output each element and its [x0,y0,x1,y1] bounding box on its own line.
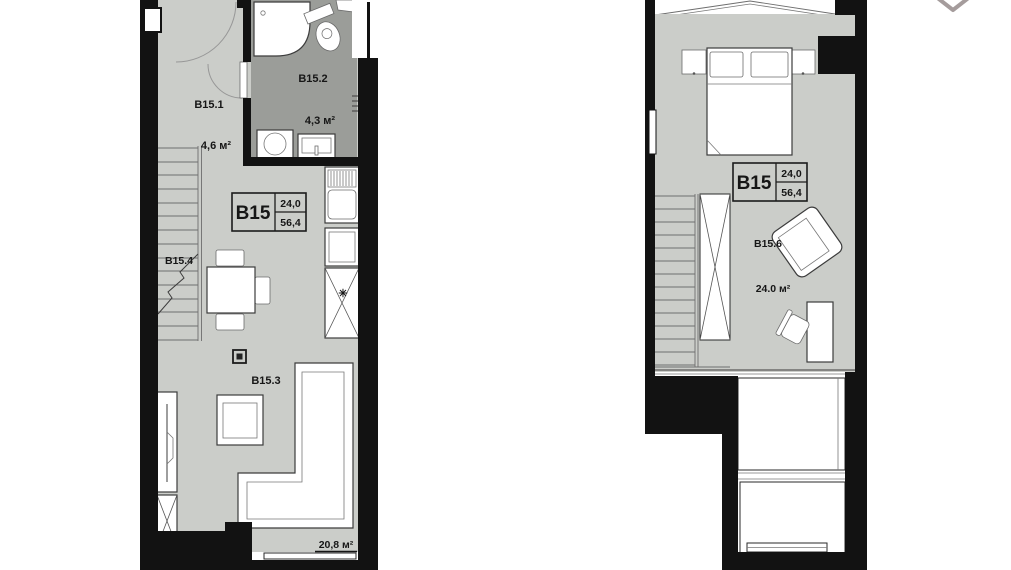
balcony-window [264,553,356,559]
pillow-icon [751,52,788,77]
room-label-hall: B15.1 [194,99,223,111]
nightstand-knob [693,72,696,75]
nightstand-knob [802,72,805,75]
burner-symbol: ✳ [338,288,347,300]
chair-icon [255,277,270,304]
desk-icon [807,302,833,362]
unit-number: B15 [737,173,772,194]
unit-area-total: 56,4 [781,187,802,199]
nightstand-icon [791,50,815,74]
room-area-bedroom: 24.0 м² [756,283,791,295]
floor-plan-lower-level: ✳ [140,0,378,570]
room-label-bathroom: B15.2 [298,73,327,85]
unit-info-card: B15 24,0 56,4 [232,193,306,231]
coffee-table-icon [217,395,263,445]
roof-panel [738,378,845,470]
faucet-icon [315,146,318,155]
kitchen-units: ✳ [325,167,359,338]
bathroom-door-leaf [240,62,247,98]
washing-machine-icon [257,130,293,158]
window-icon [649,110,656,154]
room-area-hall: 4,6 м² [201,140,231,152]
room-label-stairs: B15.4 [165,255,193,267]
shower-icon [254,2,310,56]
unit-area-level: 24,0 [781,168,802,180]
close-button[interactable] [925,0,985,22]
floor-plan-upper-level: B15 24,0 56,4 B15.6 24.0 м² [645,0,867,570]
entry-niche [144,8,161,32]
unit-area-total: 56,4 [280,217,301,229]
room-label-bedroom: B15.6 [754,238,782,250]
unit-number: B15 [236,203,271,224]
pillow-icon [710,52,743,77]
room-area-bathroom: 4,3 м² [305,115,335,127]
sink-basin-icon [328,190,356,219]
corner-window-area [352,0,378,58]
floor-plan-viewer: ✳ [0,0,1011,570]
room-area-living: 20,8 м² [319,539,354,551]
chair-icon [216,314,244,330]
close-icon [925,0,985,22]
kitchen-counter [325,228,359,266]
unit-area-level: 24,0 [280,198,301,210]
roof-terrace-section [738,378,845,556]
dining-table-icon [207,267,255,313]
room-label-living: B15.3 [251,375,280,387]
nightstand-icon [682,50,706,74]
chair-icon [216,250,244,266]
unit-info-card: B15 24,0 56,4 [733,163,807,201]
